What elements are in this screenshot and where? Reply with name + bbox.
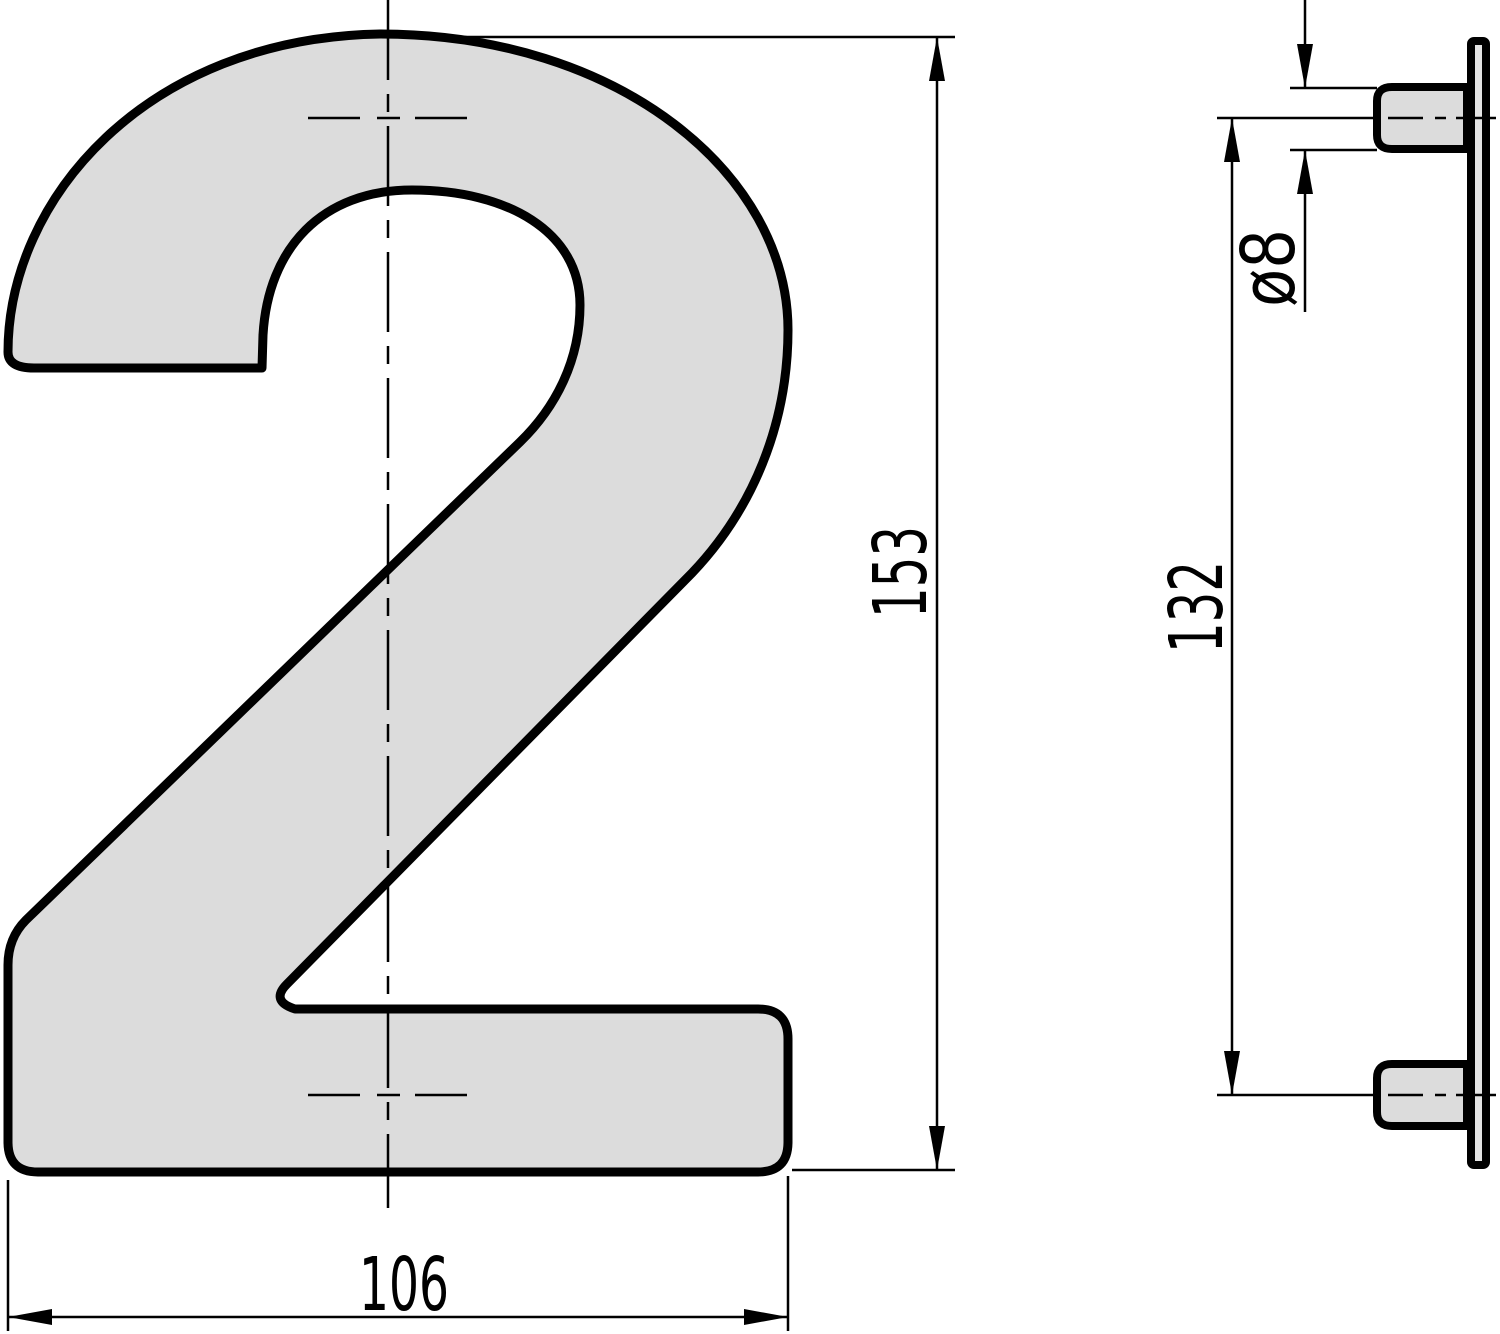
arrowhead-up (1297, 150, 1313, 194)
dimension-value-width: 106 (359, 1242, 449, 1328)
arrowhead-right (744, 1309, 788, 1325)
arrowhead-up (929, 37, 945, 81)
arrowhead-down (929, 1126, 945, 1170)
numeral-2-shape (8, 34, 788, 1172)
front-view: 153 106 (8, 0, 955, 1331)
drawing-canvas: 153 106 (0, 0, 1500, 1334)
arrowhead-down (1297, 44, 1313, 88)
side-view: 132 ø8 (1154, 0, 1500, 1165)
plate-edge (1471, 41, 1486, 1165)
dimension-width-106: 106 (8, 1176, 788, 1331)
dimension-value-spacing: 132 (1154, 561, 1240, 653)
dimension-diameter-8: ø8 (1226, 0, 1377, 312)
technical-drawing-page: 153 106 (0, 0, 1500, 1334)
arrowhead-down (1224, 1051, 1240, 1095)
arrowhead-up (1224, 118, 1240, 162)
dimension-value-diameter: ø8 (1226, 229, 1312, 307)
arrowhead-left (8, 1309, 52, 1325)
dimension-value-height: 153 (858, 526, 944, 618)
